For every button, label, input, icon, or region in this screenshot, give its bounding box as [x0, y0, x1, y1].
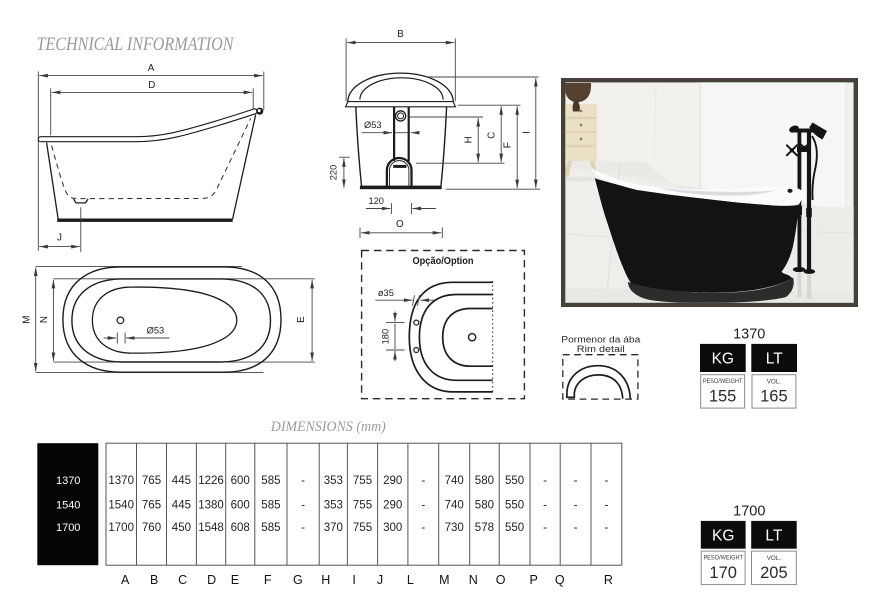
- svg-text:180: 180: [380, 329, 390, 345]
- svg-text:N: N: [39, 316, 50, 323]
- svg-text:E: E: [231, 573, 239, 587]
- svg-text:-: -: [543, 499, 547, 511]
- svg-text:600: 600: [231, 499, 250, 511]
- svg-text:J: J: [377, 573, 383, 587]
- svg-text:I: I: [352, 573, 355, 587]
- svg-text:O: O: [496, 573, 506, 587]
- svg-text:1370: 1370: [733, 327, 765, 343]
- svg-text:-: -: [604, 499, 608, 511]
- svg-text:J: J: [57, 233, 62, 244]
- svg-text:370: 370: [324, 522, 343, 534]
- svg-text:1540: 1540: [108, 499, 134, 511]
- svg-text:353: 353: [324, 499, 343, 511]
- svg-text:120: 120: [368, 196, 384, 206]
- svg-text:740: 740: [445, 499, 464, 511]
- svg-text:D: D: [148, 80, 155, 91]
- svg-text:-: -: [301, 522, 305, 534]
- svg-text:B: B: [150, 573, 158, 587]
- svg-text:P: P: [530, 573, 538, 587]
- svg-text:-: -: [543, 522, 547, 534]
- svg-text:DIMENSIONS (mm): DIMENSIONS (mm): [270, 419, 386, 435]
- svg-text:765: 765: [142, 475, 161, 487]
- svg-text:L: L: [407, 573, 414, 587]
- svg-text:A: A: [121, 573, 130, 587]
- svg-text:760: 760: [142, 522, 161, 534]
- svg-text:Ø53: Ø53: [364, 120, 382, 130]
- svg-text:1700: 1700: [733, 504, 765, 520]
- svg-text:D: D: [207, 573, 216, 587]
- svg-text:1548: 1548: [198, 522, 224, 534]
- svg-text:Q: Q: [555, 573, 565, 587]
- svg-text:-: -: [543, 475, 547, 487]
- svg-text:-: -: [301, 499, 305, 511]
- svg-text:1370: 1370: [56, 475, 80, 487]
- svg-text:F: F: [264, 573, 272, 587]
- svg-text:M: M: [439, 573, 449, 587]
- svg-text:ø35: ø35: [378, 288, 394, 298]
- svg-text:Opção/Option: Opção/Option: [413, 255, 474, 267]
- svg-text:450: 450: [172, 522, 191, 534]
- svg-text:580: 580: [475, 499, 494, 511]
- svg-text:170: 170: [709, 564, 737, 582]
- svg-text:585: 585: [261, 475, 280, 487]
- svg-text:580: 580: [475, 475, 494, 487]
- svg-text:290: 290: [383, 499, 402, 511]
- svg-text:R: R: [604, 573, 613, 587]
- svg-text:LT: LT: [766, 351, 783, 368]
- svg-text:445: 445: [172, 499, 191, 511]
- svg-text:-: -: [421, 499, 425, 511]
- svg-text:600: 600: [231, 475, 250, 487]
- svg-text:220: 220: [329, 165, 339, 181]
- svg-text:E: E: [296, 316, 307, 323]
- svg-text:755: 755: [353, 499, 372, 511]
- svg-text:290: 290: [383, 475, 402, 487]
- svg-text:Pormenor da ába: Pormenor da ába: [561, 334, 640, 344]
- svg-text:M: M: [22, 316, 33, 324]
- svg-text:550: 550: [505, 522, 524, 534]
- svg-text:KG: KG: [712, 351, 734, 368]
- svg-text:1700: 1700: [56, 522, 80, 534]
- svg-text:1700: 1700: [108, 522, 134, 534]
- svg-text:585: 585: [261, 499, 280, 511]
- svg-text:755: 755: [353, 475, 372, 487]
- svg-text:B: B: [397, 29, 404, 40]
- svg-text:C: C: [178, 573, 187, 587]
- svg-text:TECHNICAL INFORMATION: TECHNICAL INFORMATION: [37, 35, 235, 55]
- svg-text:585: 585: [261, 522, 280, 534]
- svg-text:-: -: [604, 475, 608, 487]
- svg-text:H: H: [464, 136, 475, 143]
- svg-text:F: F: [503, 142, 514, 148]
- svg-text:1226: 1226: [198, 475, 224, 487]
- svg-text:550: 550: [505, 499, 524, 511]
- svg-text:1370: 1370: [108, 475, 134, 487]
- svg-text:205: 205: [760, 564, 788, 582]
- svg-text:765: 765: [142, 499, 161, 511]
- svg-text:-: -: [421, 475, 425, 487]
- svg-text:740: 740: [445, 475, 464, 487]
- svg-text:G: G: [293, 573, 303, 587]
- svg-text:-: -: [574, 499, 578, 511]
- svg-text:608: 608: [231, 522, 250, 534]
- svg-text:1540: 1540: [56, 499, 80, 511]
- svg-text:C: C: [487, 132, 498, 139]
- svg-text:755: 755: [353, 522, 372, 534]
- svg-text:O: O: [396, 219, 404, 230]
- svg-text:-: -: [574, 522, 578, 534]
- svg-text:1380: 1380: [198, 499, 224, 511]
- svg-text:-: -: [421, 522, 425, 534]
- svg-text:H: H: [321, 573, 330, 587]
- svg-text:Rim detail: Rim detail: [577, 344, 625, 354]
- svg-text:730: 730: [445, 522, 464, 534]
- svg-text:N: N: [469, 573, 478, 587]
- svg-text:165: 165: [760, 388, 788, 406]
- svg-text:550: 550: [505, 475, 524, 487]
- svg-text:I: I: [521, 131, 532, 134]
- svg-text:PESO/WEIGHT: PESO/WEIGHT: [703, 555, 743, 562]
- svg-text:Ø53: Ø53: [147, 326, 165, 336]
- svg-text:LT: LT: [765, 527, 782, 544]
- svg-text:353: 353: [324, 475, 343, 487]
- svg-text:-: -: [574, 475, 578, 487]
- svg-text:578: 578: [475, 522, 494, 534]
- svg-text:-: -: [301, 475, 305, 487]
- svg-text:445: 445: [172, 475, 191, 487]
- svg-text:KG: KG: [712, 527, 734, 544]
- svg-text:VOL.: VOL.: [767, 378, 782, 385]
- svg-text:VOL.: VOL.: [767, 555, 782, 562]
- svg-text:300: 300: [383, 522, 402, 534]
- svg-text:155: 155: [709, 388, 737, 406]
- svg-text:A: A: [148, 63, 155, 74]
- svg-text:PESO/WEIGHT: PESO/WEIGHT: [703, 378, 743, 385]
- svg-text:-: -: [604, 522, 608, 534]
